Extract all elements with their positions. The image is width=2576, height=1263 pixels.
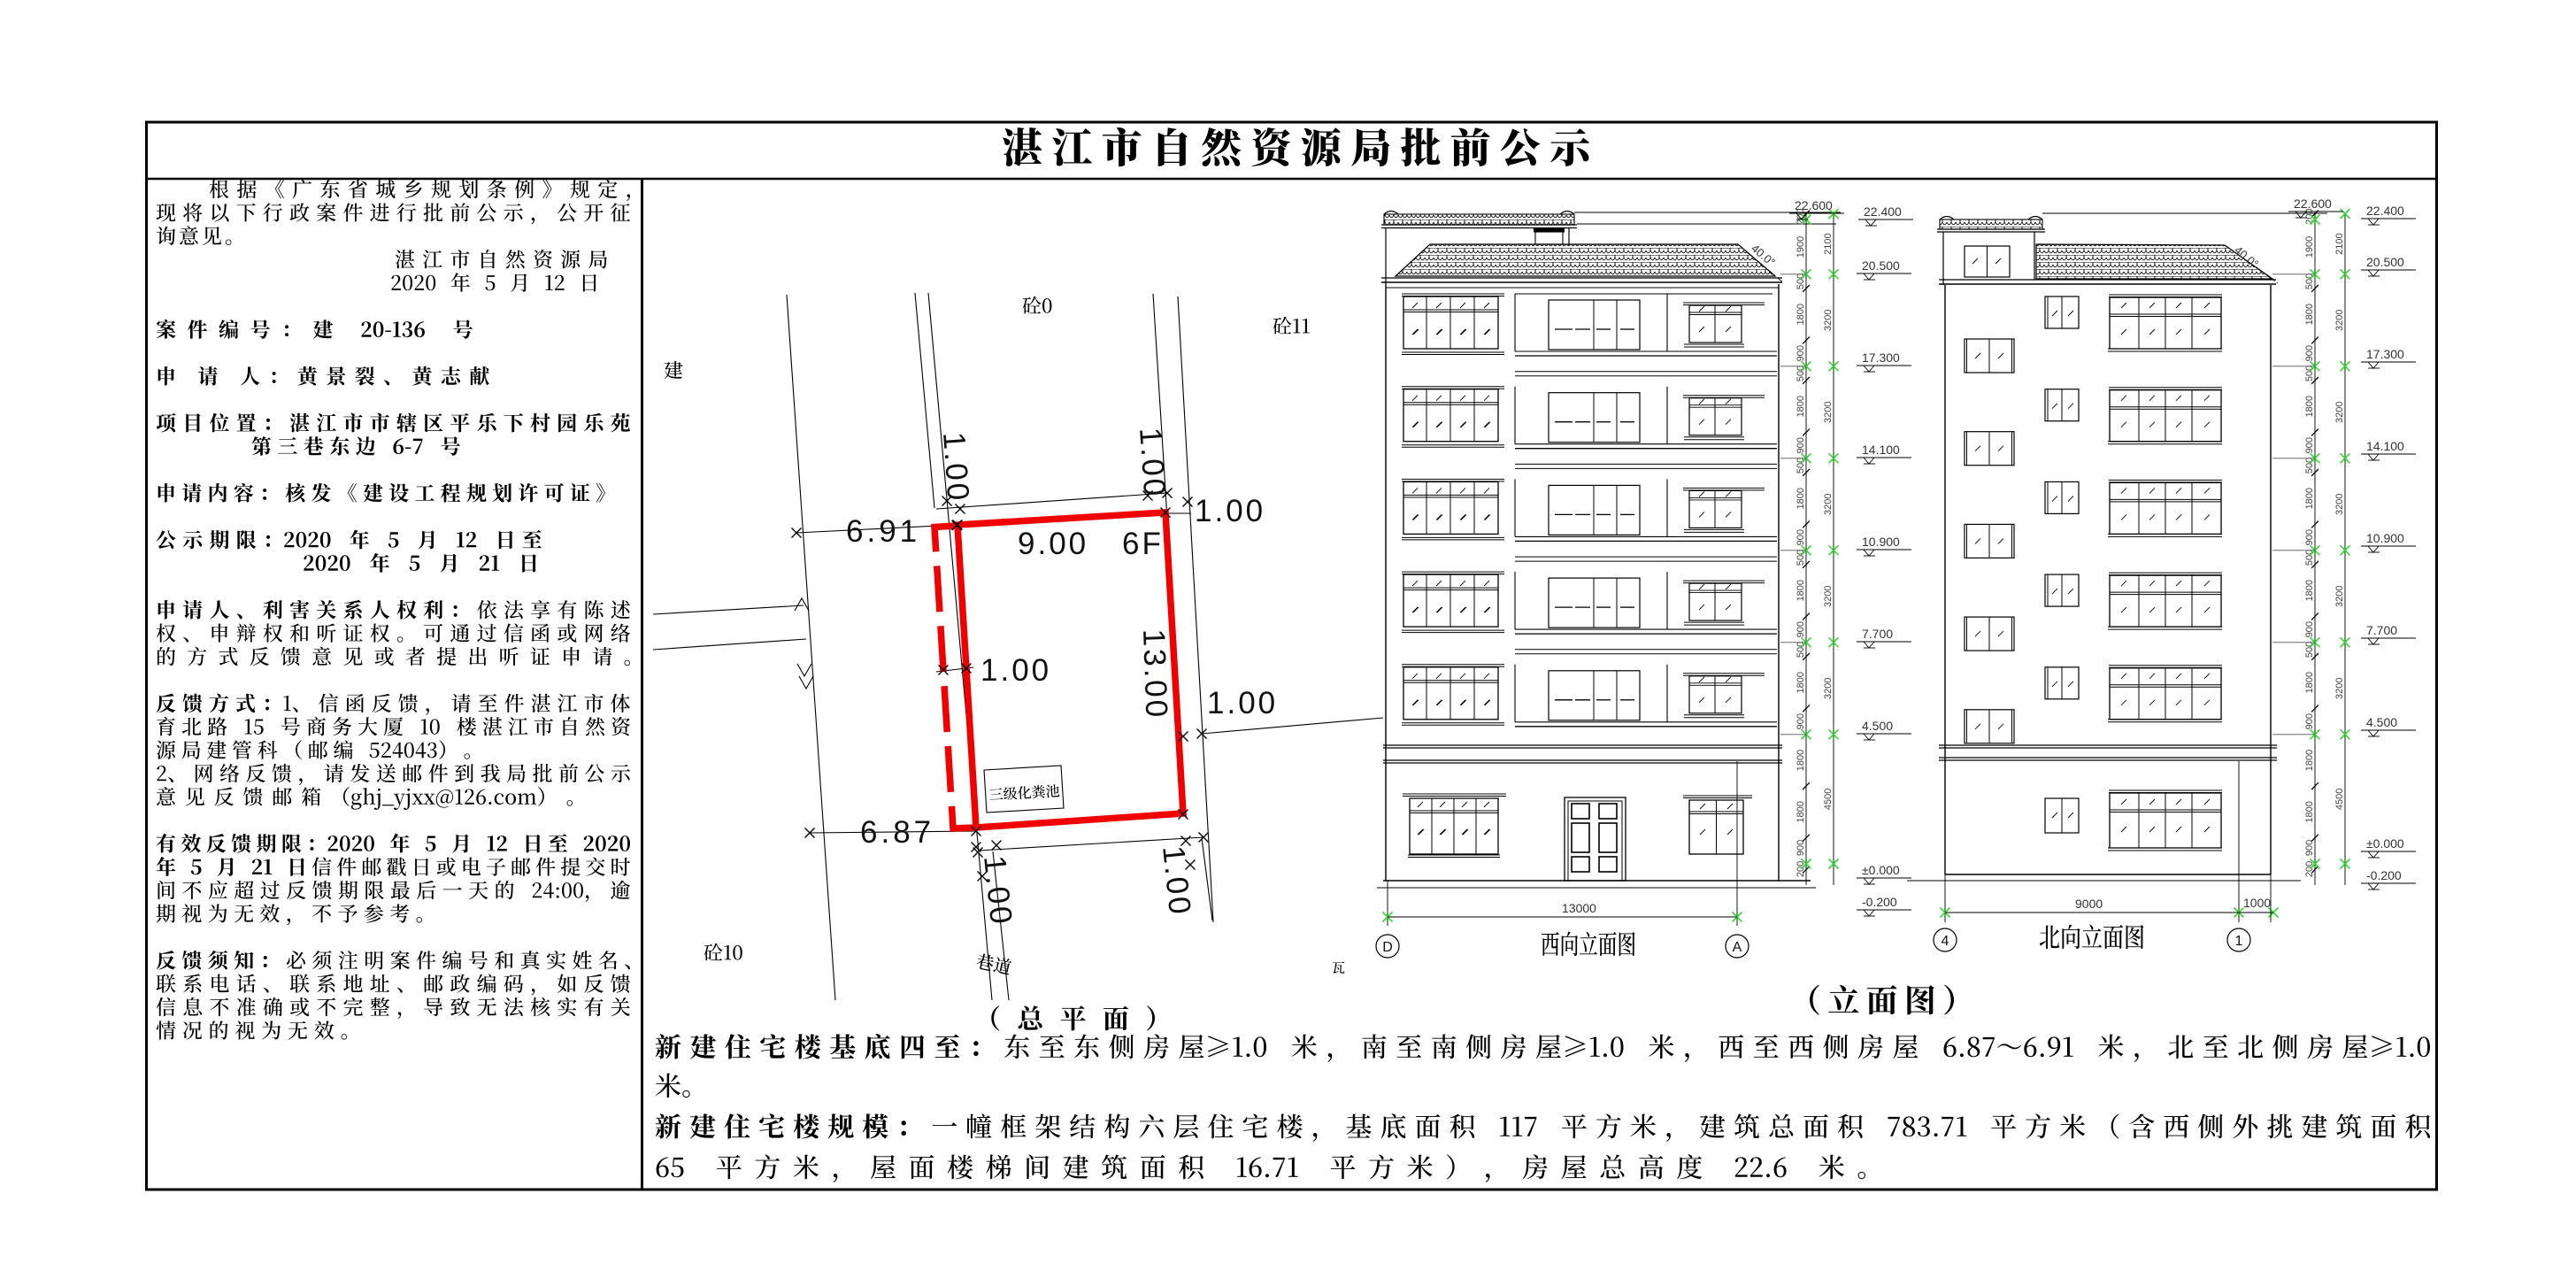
svg-text:900: 900: [2304, 713, 2315, 729]
svg-text:10.900: 10.900: [1862, 535, 1900, 549]
svg-text:1900: 1900: [2304, 236, 2315, 258]
svg-text:1800: 1800: [2304, 801, 2315, 822]
svg-text:2100: 2100: [2334, 233, 2345, 254]
svg-text:22.600: 22.600: [2294, 196, 2332, 211]
svg-text:1800: 1800: [2304, 750, 2315, 771]
svg-text:6.87: 6.87: [860, 815, 934, 850]
svg-text:1800: 1800: [2304, 396, 2315, 417]
svg-text:1800: 1800: [1796, 304, 1806, 325]
svg-text:1000: 1000: [2243, 896, 2271, 910]
svg-text:3200: 3200: [1823, 402, 1834, 423]
svg-text:1: 1: [2235, 934, 2243, 949]
svg-text:4: 4: [1942, 934, 1949, 949]
svg-text:1.00: 1.00: [1156, 844, 1197, 919]
svg-text:4.500: 4.500: [2366, 715, 2397, 729]
svg-text:1800: 1800: [2304, 304, 2315, 325]
svg-text:3200: 3200: [1823, 494, 1834, 515]
svg-text:10.900: 10.900: [2366, 531, 2404, 545]
svg-text:900: 900: [1796, 621, 1806, 637]
svg-text:22.400: 22.400: [2366, 204, 2404, 218]
svg-text:1.00: 1.00: [1207, 686, 1278, 720]
svg-text:900: 900: [1796, 345, 1806, 361]
svg-text:3200: 3200: [1823, 586, 1834, 607]
svg-text:9000: 9000: [2075, 897, 2103, 911]
svg-text:2100: 2100: [1823, 233, 1834, 254]
svg-text:-0.200: -0.200: [1862, 895, 1897, 909]
svg-text:4500: 4500: [1823, 789, 1834, 810]
svg-text:20.500: 20.500: [2366, 255, 2404, 269]
svg-text:1.00: 1.00: [1133, 427, 1172, 500]
svg-text:3200: 3200: [2334, 586, 2345, 607]
svg-text:1.00: 1.00: [1195, 494, 1265, 528]
svg-text:17.300: 17.300: [1862, 350, 1900, 365]
svg-text:1800: 1800: [1796, 488, 1806, 509]
svg-text:1800: 1800: [1796, 801, 1806, 822]
svg-text:1800: 1800: [1796, 750, 1806, 771]
svg-text:13000: 13000: [1562, 901, 1596, 915]
svg-text:1800: 1800: [2304, 672, 2315, 693]
svg-text:3200: 3200: [2334, 678, 2345, 699]
svg-text:±0.000: ±0.000: [2366, 836, 2404, 851]
svg-text:3200: 3200: [2334, 310, 2345, 331]
svg-text:1800: 1800: [1796, 396, 1806, 417]
svg-text:900: 900: [1796, 529, 1806, 545]
svg-text:3200: 3200: [2334, 494, 2345, 515]
svg-text:D: D: [1382, 940, 1393, 955]
svg-text:1800: 1800: [1796, 580, 1806, 601]
svg-text:900: 900: [1796, 840, 1806, 856]
svg-text:22.400: 22.400: [1864, 204, 1902, 219]
svg-text:22.600: 22.600: [1795, 198, 1833, 212]
svg-text:1.00: 1.00: [977, 854, 1019, 928]
svg-text:14.100: 14.100: [2366, 439, 2404, 453]
svg-text:200: 200: [2304, 209, 2315, 225]
svg-text:3200: 3200: [1823, 310, 1834, 331]
svg-text:17.300: 17.300: [2366, 347, 2404, 361]
svg-text:6.91: 6.91: [846, 514, 920, 549]
svg-text:7.700: 7.700: [1862, 627, 1893, 641]
svg-text:1800: 1800: [2304, 580, 2315, 601]
svg-text:200: 200: [2304, 861, 2315, 877]
svg-text:900: 900: [2304, 529, 2315, 545]
svg-text:13.00: 13.00: [1136, 628, 1174, 720]
svg-text:1.00: 1.00: [936, 431, 975, 504]
svg-text:1900: 1900: [1796, 236, 1806, 258]
svg-text:900: 900: [1796, 713, 1806, 729]
svg-text:900: 900: [2304, 840, 2315, 856]
svg-text:-0.200: -0.200: [2366, 868, 2402, 882]
svg-text:±0.000: ±0.000: [1862, 863, 1900, 877]
svg-text:1800: 1800: [1796, 672, 1806, 693]
svg-text:9.00: 9.00: [1018, 527, 1088, 561]
svg-text:1800: 1800: [2304, 488, 2315, 509]
svg-text:900: 900: [2304, 345, 2315, 361]
svg-text:6F: 6F: [1122, 527, 1164, 561]
svg-text:A: A: [1733, 940, 1742, 955]
svg-text:1.00: 1.00: [980, 653, 1051, 688]
svg-text:7.700: 7.700: [2366, 623, 2397, 637]
svg-text:4.500: 4.500: [1862, 719, 1893, 733]
svg-text:900: 900: [2304, 621, 2315, 637]
svg-text:900: 900: [1796, 437, 1806, 453]
svg-text:3200: 3200: [1823, 678, 1834, 699]
svg-text:20.500: 20.500: [1862, 258, 1900, 273]
svg-text:200: 200: [1796, 861, 1806, 877]
svg-text:14.100: 14.100: [1862, 443, 1900, 457]
svg-text:4500: 4500: [2334, 789, 2345, 810]
svg-text:3200: 3200: [2334, 402, 2345, 423]
svg-text:900: 900: [2304, 437, 2315, 453]
